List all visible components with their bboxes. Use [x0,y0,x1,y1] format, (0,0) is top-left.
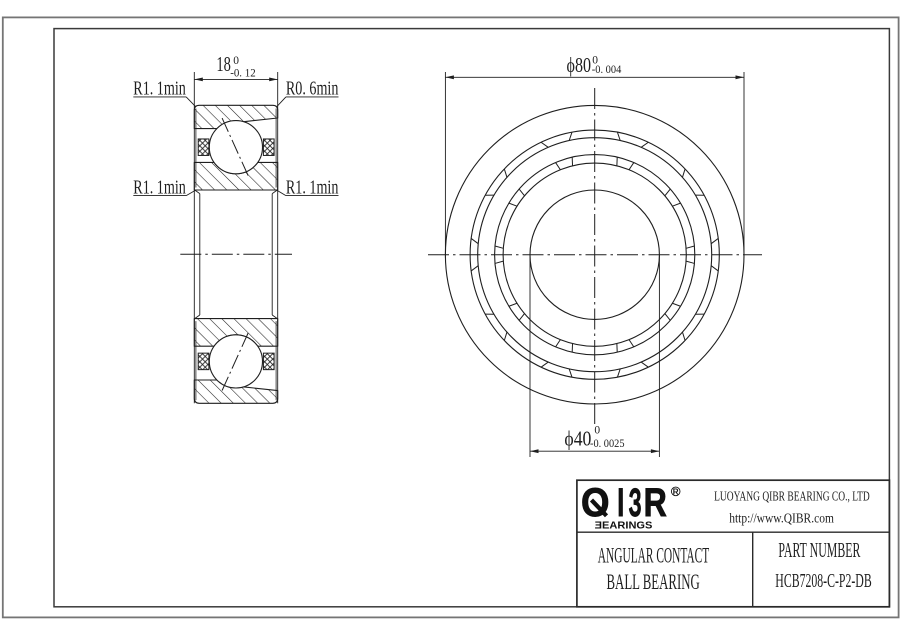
svg-text:PART NUMBER: PART NUMBER [778,538,860,562]
svg-text:-0. 12: -0. 12 [230,68,256,80]
svg-text:18: 18 [216,52,231,76]
svg-text:ϕ80: ϕ80 [567,53,592,77]
svg-text:R0. 6min: R0. 6min [286,79,339,100]
svg-text:R1. 1min: R1. 1min [133,79,186,100]
svg-text:0: 0 [594,425,600,437]
svg-text:-0. 004: -0. 004 [592,64,622,76]
svg-text:ANGULAR CONTACT: ANGULAR CONTACT [598,542,710,567]
svg-text:R: R [673,487,679,496]
svg-text:BALL BEARING: BALL BEARING [607,569,700,594]
svg-text:ƎEARINGS: ƎEARINGS [595,519,653,531]
svg-text:-0. 0025: -0. 0025 [590,438,625,450]
svg-text:ϕ40: ϕ40 [564,426,591,450]
svg-text:HCB7208-C-P2-DB: HCB7208-C-P2-DB [775,570,871,592]
svg-text:http://www.QIBR.com: http://www.QIBR.com [729,512,834,527]
svg-text:LUOYANG QIBR BEARING CO., LTD: LUOYANG QIBR BEARING CO., LTD [714,489,870,504]
svg-text:0: 0 [233,55,239,67]
